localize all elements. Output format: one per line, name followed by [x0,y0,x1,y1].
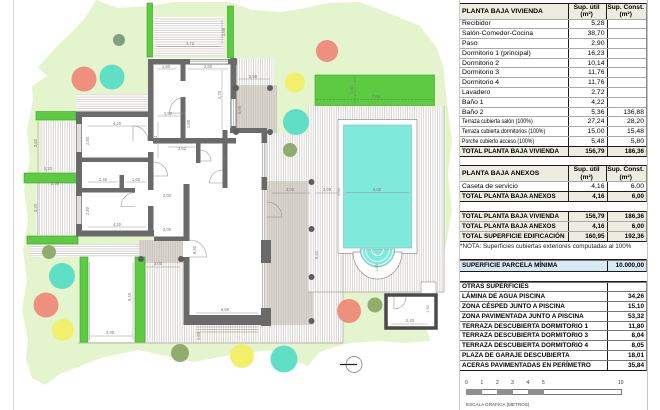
svg-text:1,50: 1,50 [375,264,379,271]
svg-text:3,22: 3,22 [33,203,38,212]
svg-text:1,60: 1,60 [132,177,141,182]
svg-text:1,50: 1,50 [426,305,430,312]
svg-text:2,80: 2,80 [85,136,90,145]
svg-text:6,50: 6,50 [221,307,230,312]
svg-text:3,62: 3,62 [178,146,187,151]
svg-text:1,80: 1,80 [186,119,191,128]
svg-text:2,00: 2,00 [350,86,354,93]
svg-text:2,00: 2,00 [163,193,172,198]
svg-text:6,00: 6,00 [237,105,242,114]
svg-text:5,46: 5,46 [127,292,132,301]
svg-text:2,50: 2,50 [51,181,60,186]
svg-text:9,41: 9,41 [314,250,319,259]
svg-text:4,20: 4,20 [113,121,122,126]
svg-text:4,72: 4,72 [186,41,195,46]
svg-text:4,00: 4,00 [373,187,382,192]
svg-text:3,30: 3,30 [106,330,115,335]
svg-text:4,70: 4,70 [217,90,222,99]
svg-text:2,80: 2,80 [204,64,213,69]
svg-text:2,00: 2,00 [323,187,332,192]
svg-text:2,66: 2,66 [221,27,226,36]
svg-text:2,44: 2,44 [153,135,158,144]
svg-text:3,00: 3,00 [154,261,163,266]
svg-text:7,66: 7,66 [372,94,381,99]
svg-text:3,62: 3,62 [33,138,38,147]
svg-text:2,22: 2,22 [44,166,53,171]
svg-text:4,00: 4,00 [337,188,341,195]
svg-text:2,80: 2,80 [85,206,90,215]
svg-text:4,20: 4,20 [113,222,122,227]
svg-text:1,80: 1,80 [162,64,171,69]
svg-text:1,80: 1,80 [196,331,201,340]
svg-text:3,00: 3,00 [286,187,295,192]
svg-text:8,60: 8,60 [192,245,197,254]
svg-text:2,46: 2,46 [99,177,108,182]
svg-text:1,92: 1,92 [164,111,173,116]
svg-text:2,40: 2,40 [406,318,415,323]
svg-text:2,98: 2,98 [249,74,258,79]
svg-text:2,40: 2,40 [222,155,227,164]
svg-text:2,00: 2,00 [163,227,172,232]
